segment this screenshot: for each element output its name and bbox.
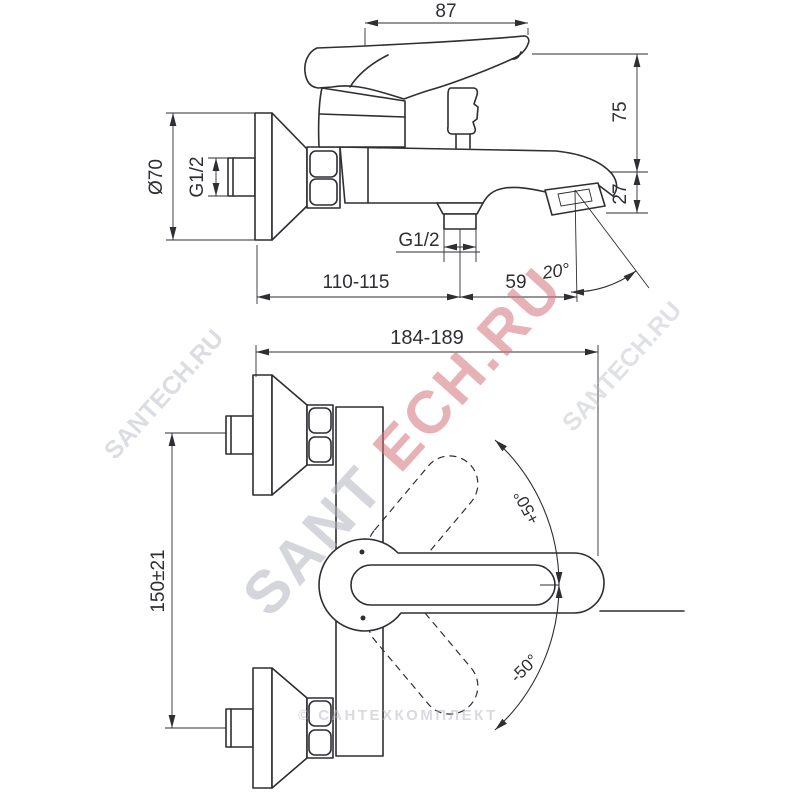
dim-110-115-label: 110-115 xyxy=(323,272,390,293)
dim-dia70-label: Ø70 xyxy=(146,159,167,195)
swing-down-label: -50° xyxy=(507,651,543,687)
swing-up-label: +50° xyxy=(510,487,544,527)
watermark-bottom-credit: © САНТЕХКОМПЛЕКТ xyxy=(298,707,498,724)
drawing-canvas: 87 75 27 Ø70 G1/2 G1/2 xyxy=(0,0,800,800)
lever-handle-front xyxy=(319,539,604,631)
dim-27-label: 27 xyxy=(610,183,631,204)
dim-150-label: 150±21 xyxy=(148,549,169,612)
dim-g12-outlet: G1/2 xyxy=(396,229,480,262)
rosette-dot-bottom xyxy=(361,616,366,621)
wall-escutcheon-side xyxy=(255,113,307,240)
inlet-top xyxy=(226,375,333,495)
hex-nut-side xyxy=(307,147,340,208)
inlet-bottom xyxy=(226,668,333,788)
lever-handle-side xyxy=(305,36,529,99)
rosette-dot-top xyxy=(360,550,365,555)
cartridge-dome xyxy=(319,88,405,147)
diverter-knob xyxy=(448,88,478,148)
watermarks: SANT ECH.RU SANTECH.RU SANTECH.RU © САНТ… xyxy=(99,254,687,724)
g12-outlet-label: G1/2 xyxy=(398,230,439,251)
watermark-small-left: SANTECH.RU xyxy=(99,324,229,465)
dim-75-label: 75 xyxy=(610,101,631,122)
watermark-small-right: SANTECH.RU xyxy=(557,296,687,437)
dim-g12-inlet: G1/2 xyxy=(187,156,230,197)
dim-87-label: 87 xyxy=(435,1,456,22)
watermark-main-red: ECH.RU xyxy=(360,254,576,483)
side-view: 87 75 27 Ø70 G1/2 G1/2 xyxy=(146,1,649,304)
dim-150: 150±21 xyxy=(148,433,226,728)
technical-drawing-page: 87 75 27 Ø70 G1/2 G1/2 xyxy=(0,0,800,800)
g12-inlet-label: G1/2 xyxy=(187,156,208,197)
inlet-stub-side xyxy=(228,158,255,196)
